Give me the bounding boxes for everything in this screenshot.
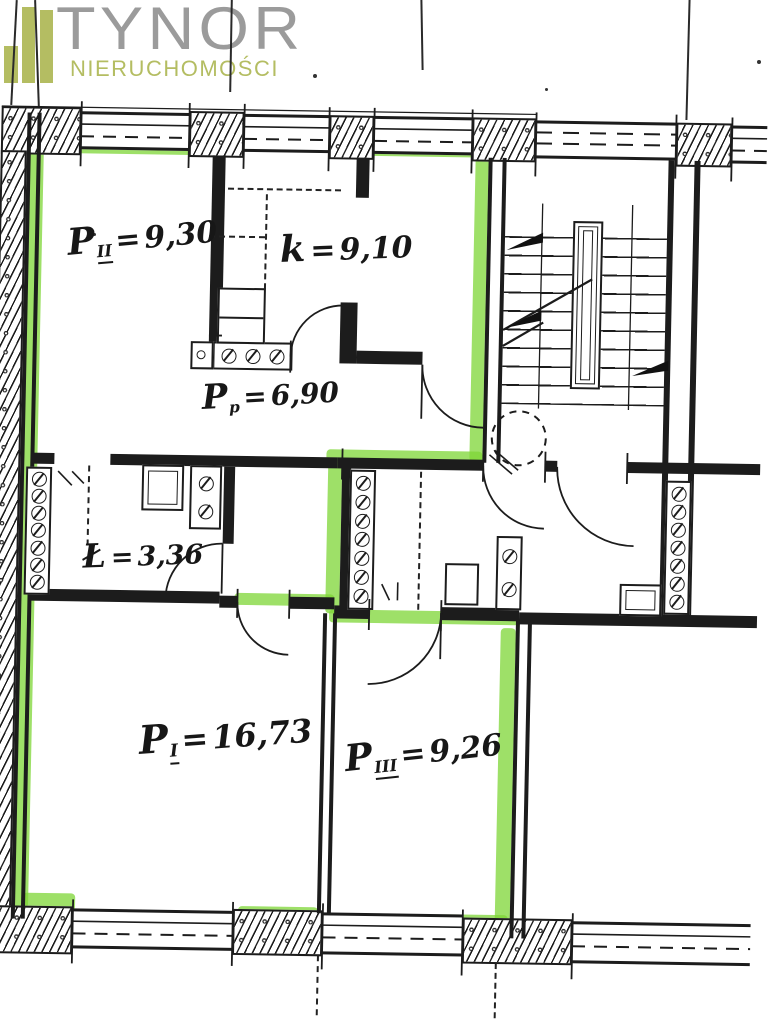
equals-sign: =	[242, 380, 267, 414]
room-symbol: k	[279, 227, 306, 271]
room-area: 9,10	[339, 230, 413, 268]
room-area: 9,30	[143, 215, 219, 256]
equals-sign: =	[110, 542, 134, 574]
equals-sign: =	[310, 233, 336, 269]
equals-sign: =	[114, 222, 142, 259]
room-area: 9,26	[428, 728, 504, 771]
room-area: 3,36	[137, 539, 204, 572]
room-symbol: P	[201, 377, 229, 418]
room-area: 16,73	[211, 712, 313, 757]
room-subscript	[107, 558, 108, 576]
room-symbol: Ł	[82, 536, 107, 576]
room-label-hall: Pp=6,90	[201, 371, 340, 418]
dashed-circle-fixture	[491, 411, 546, 466]
room-subscript: p	[229, 398, 241, 417]
room-symbol: P	[343, 734, 375, 780]
room-subscript	[306, 251, 307, 270]
room-symbol: P	[137, 716, 169, 764]
stair-flight-lines	[538, 204, 632, 410]
room-subscript: I	[169, 740, 179, 765]
room-area: 6,90	[270, 376, 340, 413]
door-arc	[164, 303, 639, 688]
stair-break-line	[503, 278, 592, 347]
room-subscript: II	[96, 241, 113, 264]
room-label-kitchen: k=9,10	[279, 223, 413, 271]
floor-plan-drawing: PII=9,30 k=9,10 Pp=6,90 Ł=3,36 PI=16,73 …	[0, 0, 768, 1020]
room-subscript: III	[373, 756, 398, 780]
equals-sign: =	[399, 736, 428, 773]
stair-direction-arrows	[504, 232, 671, 377]
room-label-bathroom: Ł=3,36	[82, 532, 204, 576]
equals-sign: =	[180, 719, 209, 759]
plan-annotations	[0, 0, 768, 1020]
scanned-floor-plan: TYNOR NIERUCHOMOŚCI	[0, 0, 768, 1020]
room-symbol: P	[66, 219, 97, 264]
demolition-arrow-marks	[56, 444, 519, 602]
